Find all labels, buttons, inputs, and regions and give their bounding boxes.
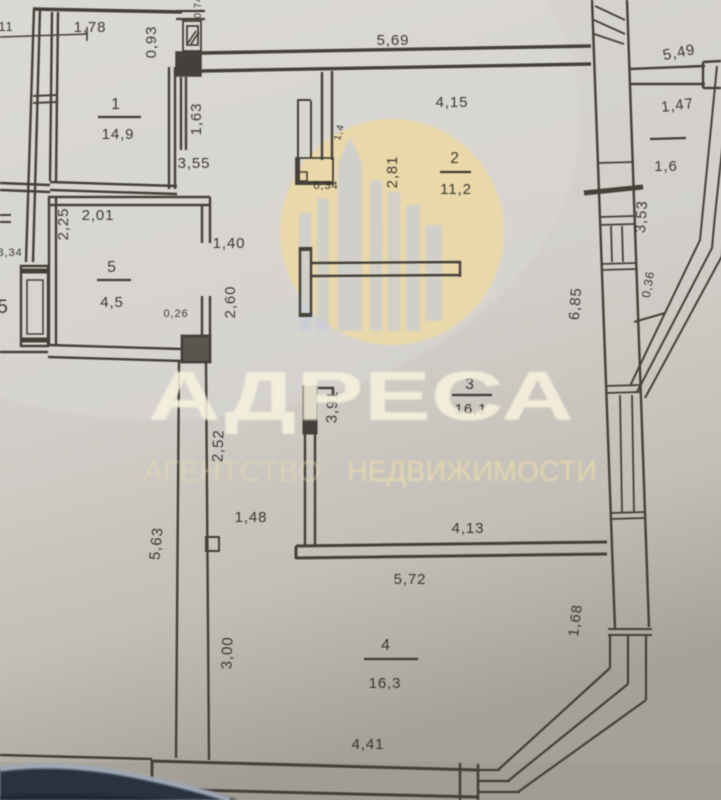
svg-text:АГЕНТСТВО: АГЕНТСТВО: [143, 456, 321, 488]
svg-text:5: 5: [107, 259, 117, 276]
svg-text:2,01: 2,01: [82, 207, 115, 224]
svg-text:11,2: 11,2: [440, 181, 472, 198]
svg-text:4: 4: [381, 637, 391, 654]
svg-text:1,48: 1,48: [235, 509, 268, 526]
svg-text:2,25: 2,25: [55, 208, 72, 241]
svg-text:НЕДВИЖИМОСТИ: НЕДВИЖИМОСТИ: [347, 456, 597, 488]
svg-text:3,55: 3,55: [178, 155, 211, 172]
svg-text:1,6: 1,6: [654, 158, 678, 175]
svg-text:4,13: 4,13: [452, 520, 485, 537]
svg-text:4,15: 4,15: [436, 94, 469, 111]
svg-text:1,78: 1,78: [74, 19, 107, 36]
svg-text:11: 11: [0, 19, 14, 34]
svg-text:0,93: 0,93: [143, 26, 160, 59]
svg-text:4,5: 4,5: [100, 294, 124, 311]
svg-text:1,40: 1,40: [213, 235, 246, 252]
svg-text:0,74: 0,74: [193, 0, 204, 19]
svg-text:3,53: 3,53: [632, 200, 651, 234]
svg-text:0,26: 0,26: [163, 308, 188, 320]
svg-text:8,34: 8,34: [0, 247, 23, 259]
svg-text:1,63: 1,63: [188, 103, 205, 136]
svg-text:2,60: 2,60: [222, 286, 239, 319]
svg-text:16,3: 16,3: [369, 675, 402, 692]
svg-text:4,41: 4,41: [352, 736, 385, 753]
svg-text:3,00: 3,00: [218, 636, 236, 669]
svg-text:5,69: 5,69: [377, 32, 410, 49]
svg-text:АДРЕСА: АДРЕСА: [148, 357, 574, 435]
svg-text:2,81: 2,81: [384, 156, 401, 189]
svg-text:5,72: 5,72: [394, 571, 427, 588]
svg-text:5,63: 5,63: [146, 526, 166, 560]
svg-text:5: 5: [0, 297, 9, 318]
svg-text:0,34: 0,34: [313, 180, 338, 192]
svg-text:1: 1: [111, 96, 121, 113]
svg-text:14,9: 14,9: [102, 126, 135, 143]
svg-text:2: 2: [450, 150, 460, 167]
svg-text:6,85: 6,85: [566, 287, 585, 321]
